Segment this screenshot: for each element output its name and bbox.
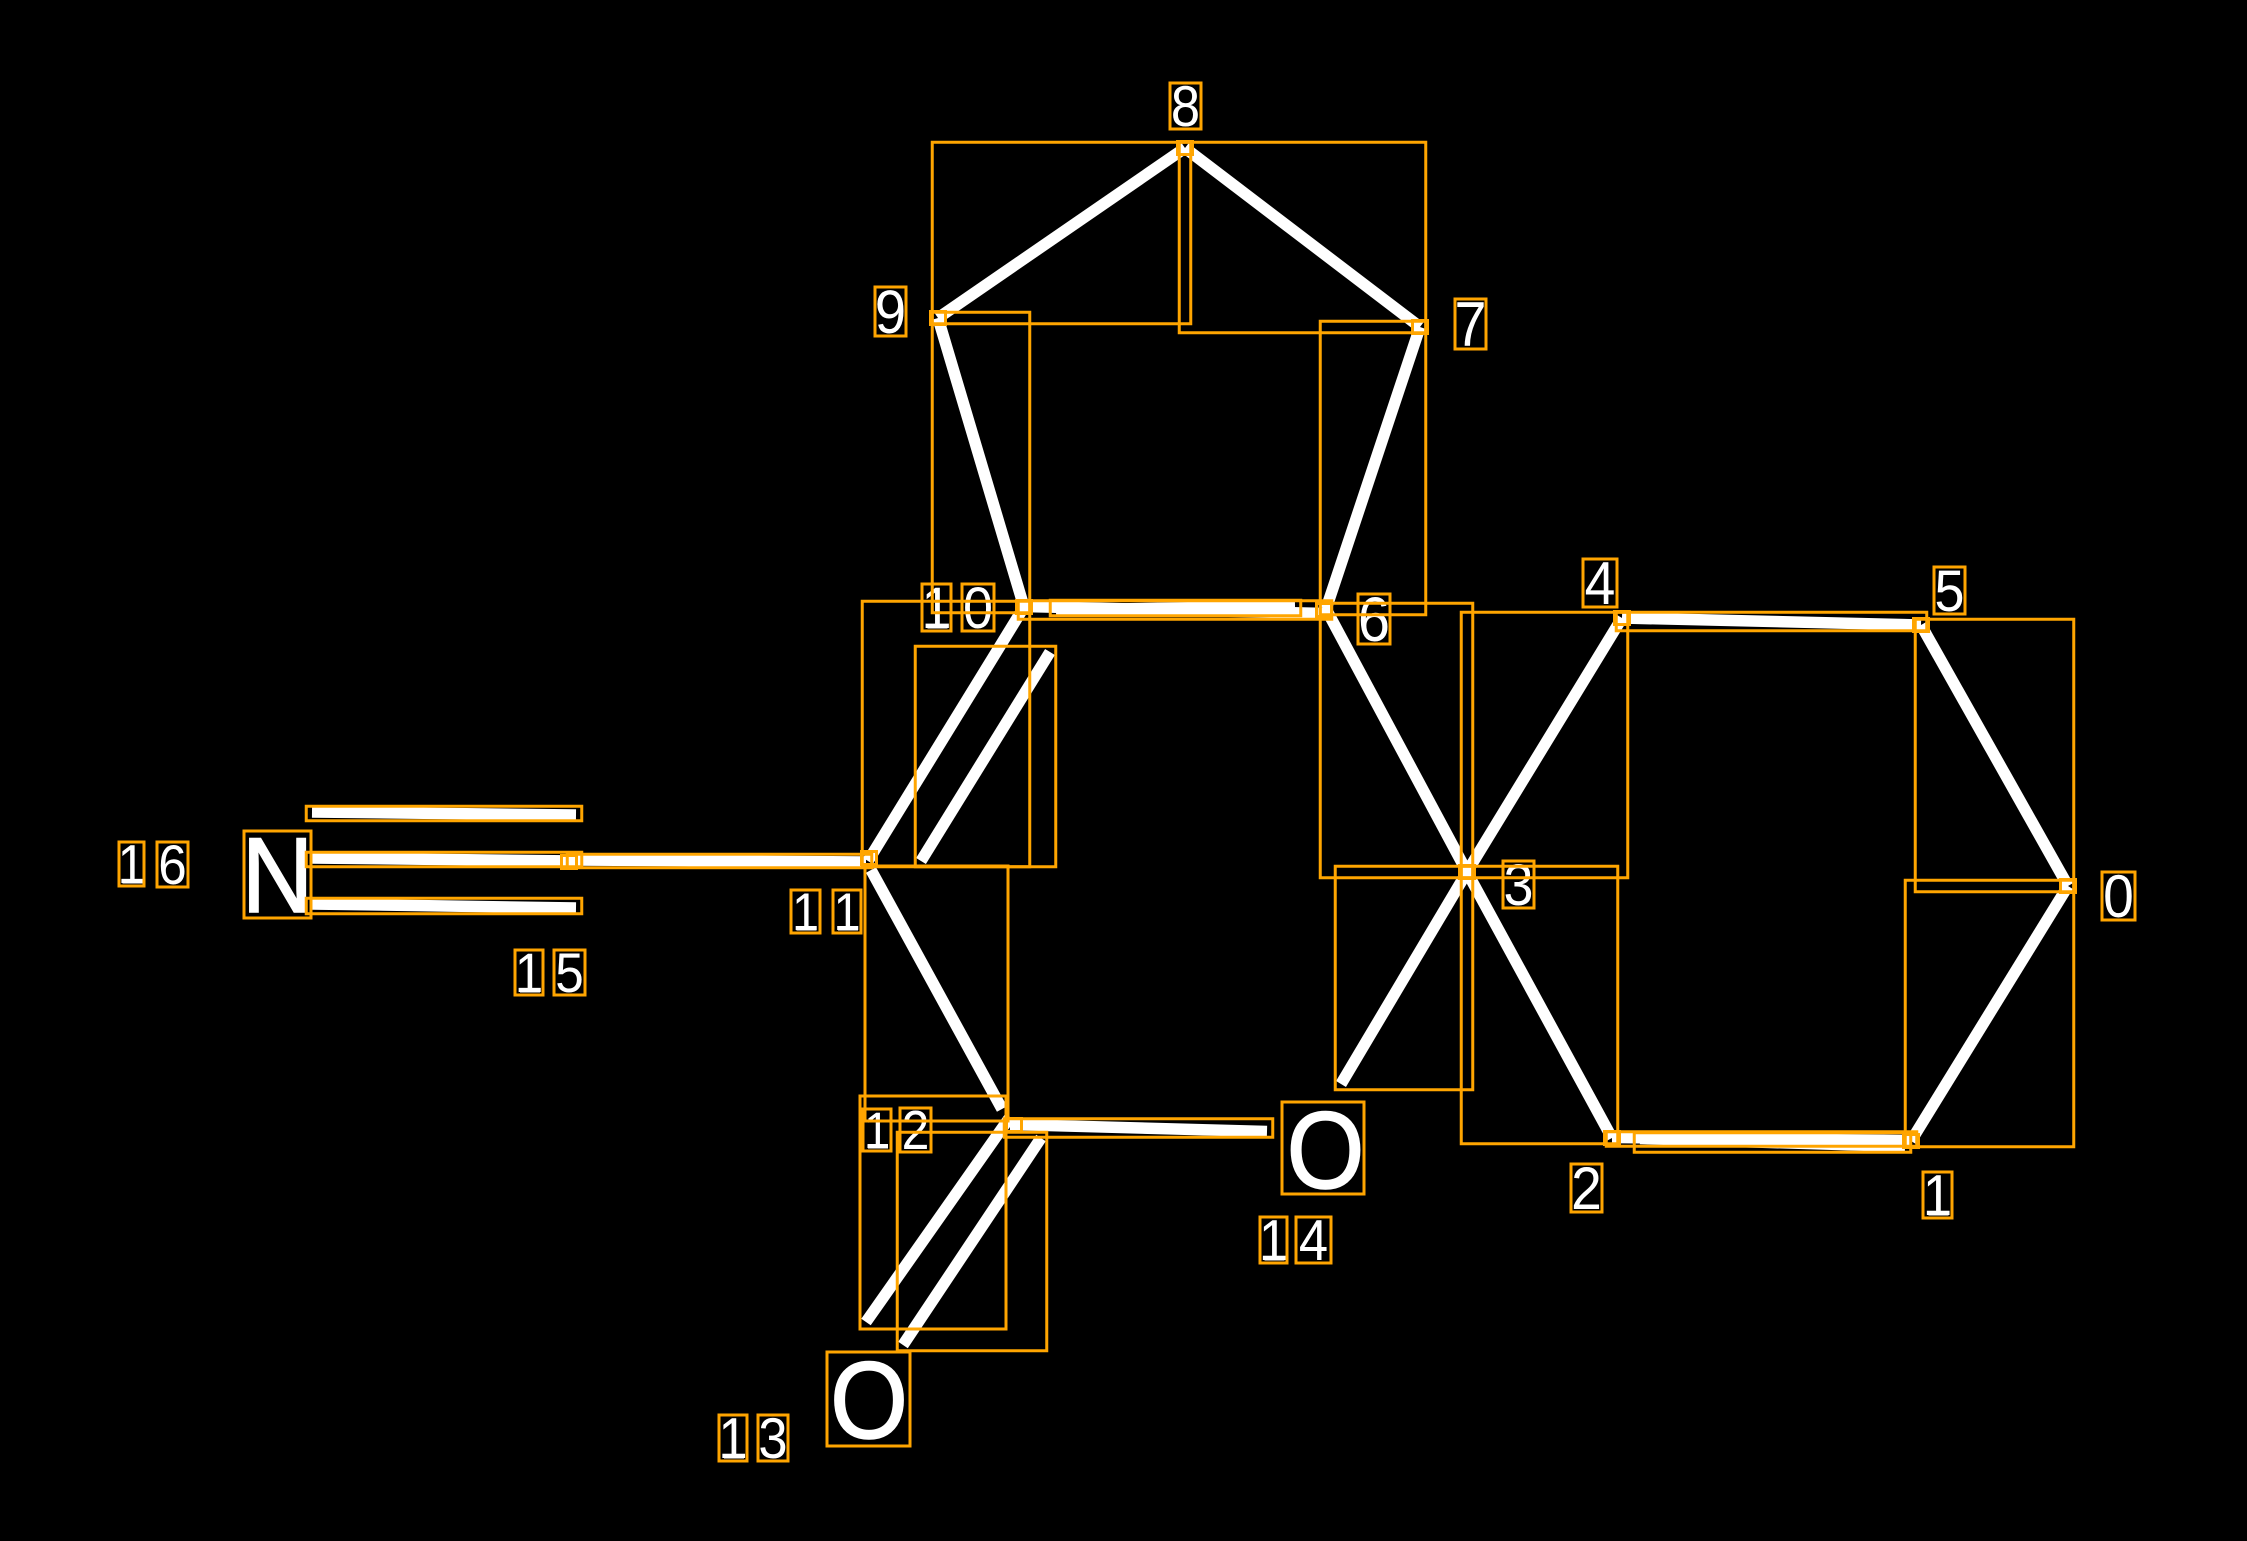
svg-text:O: O bbox=[830, 1340, 908, 1462]
